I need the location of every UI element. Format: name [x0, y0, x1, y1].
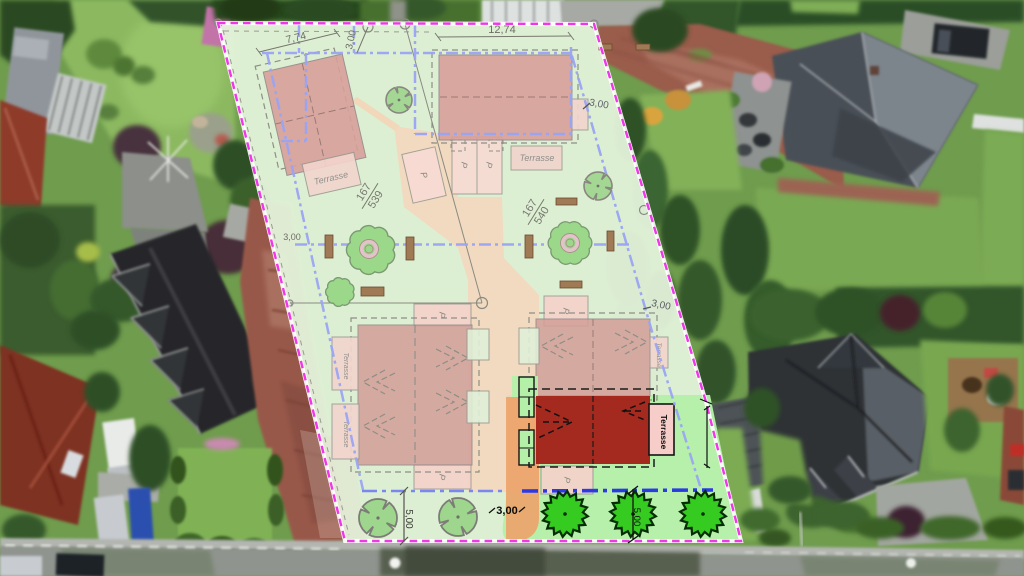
svg-text:12,74: 12,74 [488, 24, 516, 36]
svg-text:5,00: 5,00 [631, 508, 642, 527]
svg-text:3,00: 3,00 [283, 232, 301, 242]
svg-text:3,00: 3,00 [496, 505, 517, 517]
svg-text:5,00: 5,00 [403, 509, 414, 529]
svg-text:Terrasse: Terrasse [342, 353, 349, 380]
svg-text:Terrasse: Terrasse [342, 421, 349, 448]
svg-text:Terrasse: Terrasse [659, 415, 669, 450]
svg-text:Terrasse: Terrasse [520, 153, 555, 163]
